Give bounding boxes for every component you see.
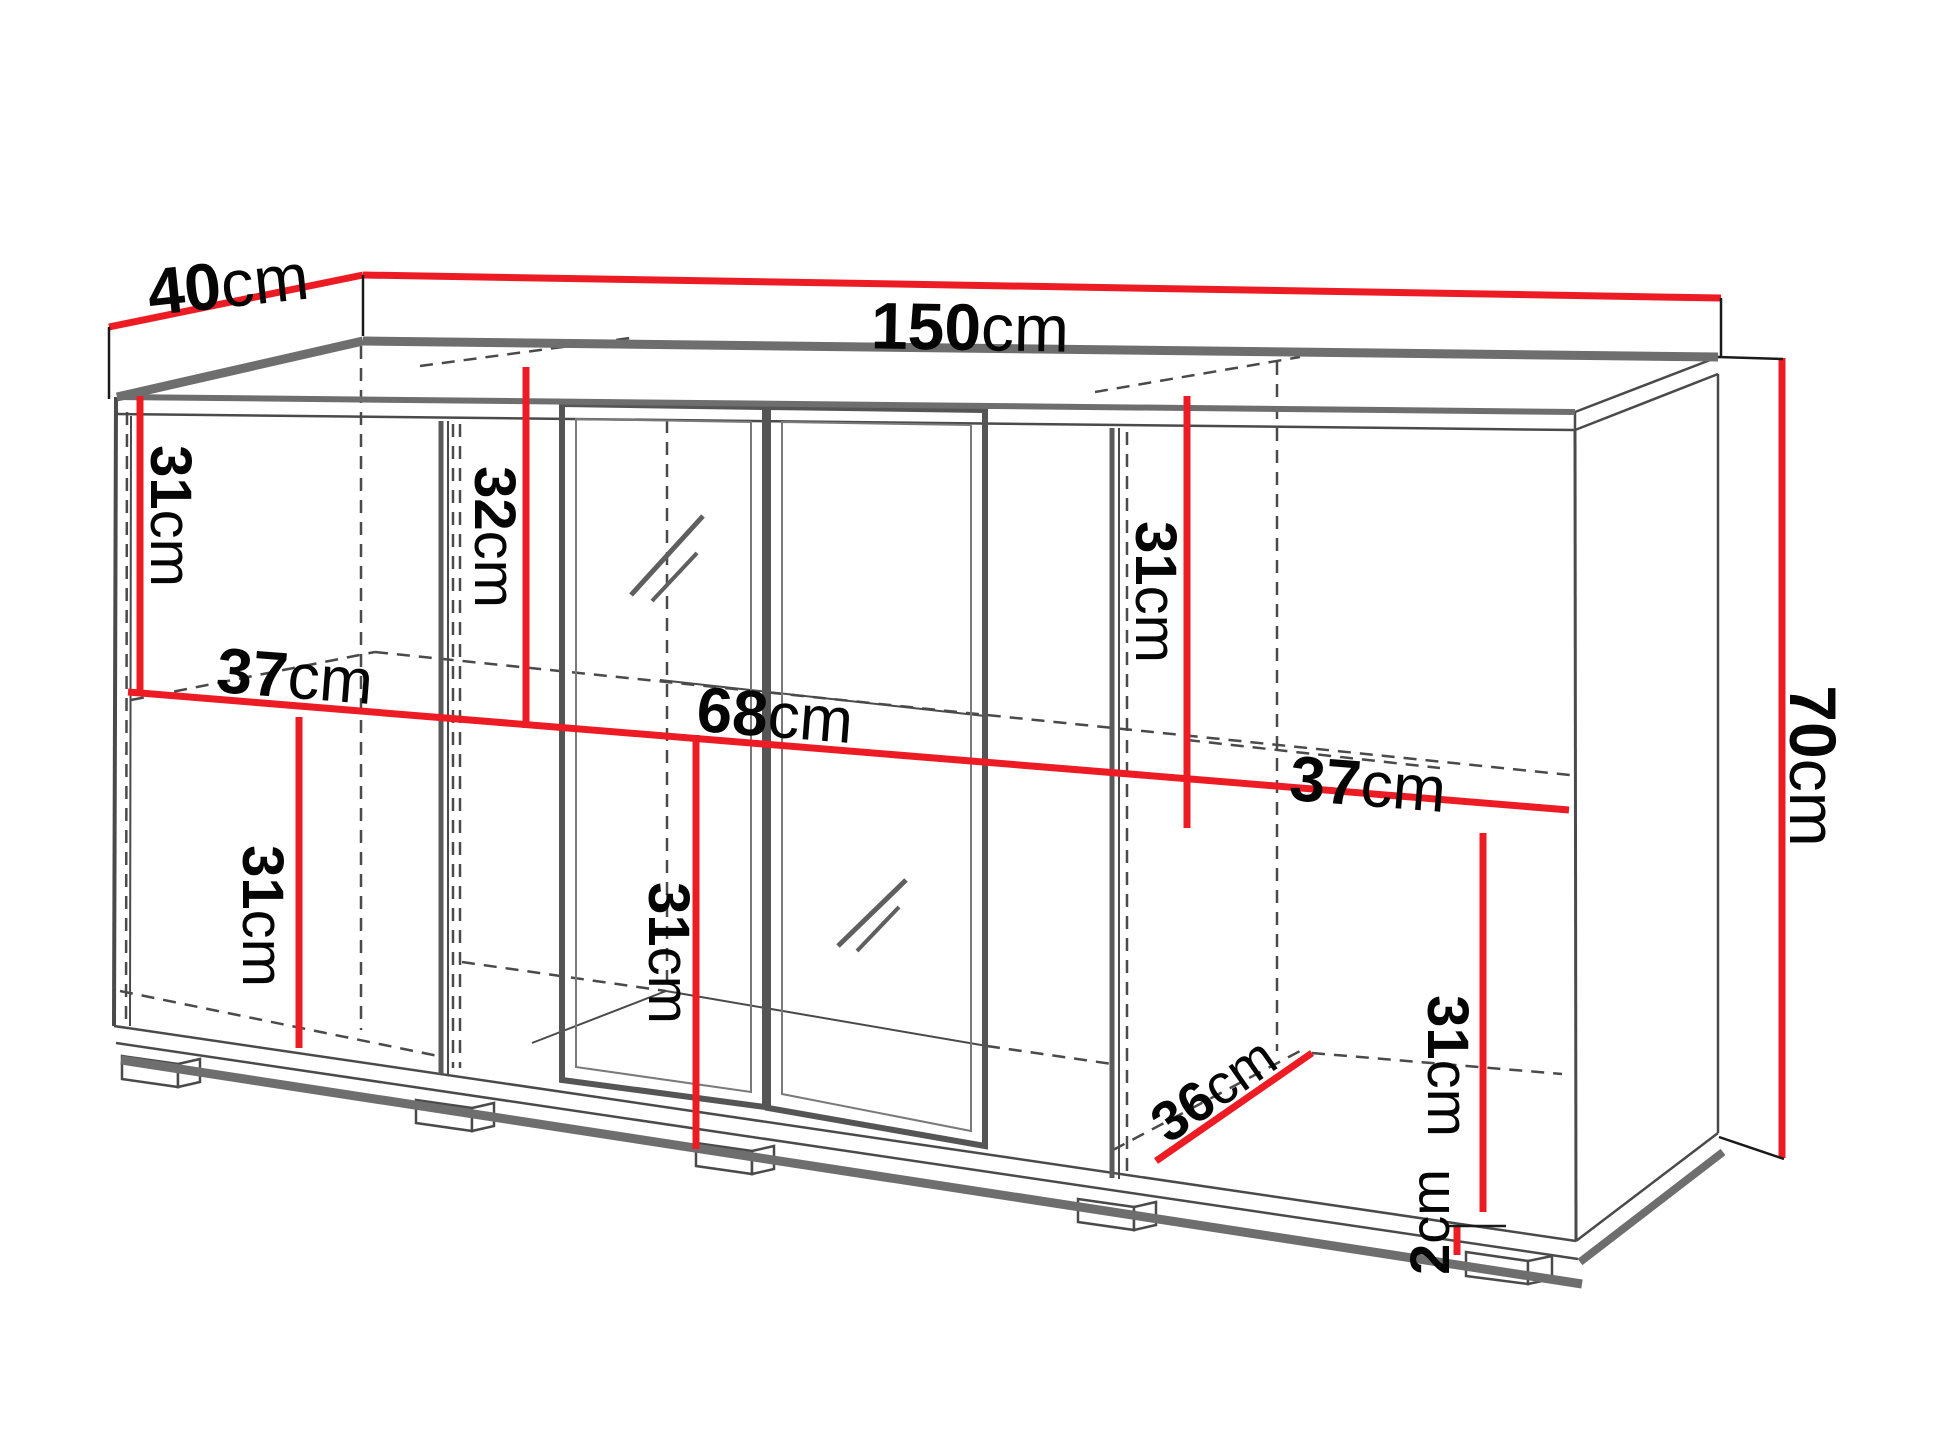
- left-front-edge: [114, 397, 116, 1026]
- top-left-edge: [117, 341, 363, 397]
- depth-label: 40cm: [144, 239, 312, 329]
- top-slab-right-bottom-edge: [1575, 374, 1718, 430]
- glass-door-right-frame: [768, 407, 985, 1146]
- shelf-right-width-label: 37cm: [1287, 742, 1449, 826]
- top-right-section-label: 31cm: [1124, 521, 1189, 663]
- bottom-left-section-label: 31cm: [231, 845, 296, 987]
- top-left-section-label: 31cm: [139, 445, 204, 587]
- furniture-dimension-diagram: 40cm 150cm 70cm 31cm 32cm 31cm 37cm 68cm…: [0, 0, 1939, 1454]
- bottom-right-section-label: 31cm: [1416, 995, 1481, 1137]
- hidden-floor-back-mid: [987, 1046, 1112, 1064]
- left-inner-edge: [130, 416, 131, 1026]
- top-middle-section-label: 32cm: [463, 466, 528, 608]
- extension-height-bottom: [1719, 1137, 1784, 1159]
- floor-depth-label: 36cm: [1139, 1024, 1287, 1154]
- hidden-top-depth-right: [1095, 357, 1300, 392]
- right-side-shadow: [1580, 1152, 1723, 1262]
- height-label: 70cm: [1776, 685, 1850, 846]
- top-slab-right-top-edge: [1575, 357, 1718, 412]
- width-label: 150cm: [870, 288, 1069, 365]
- glass-door-right-pane: [782, 422, 971, 1131]
- right-side-bottom-edge: [1576, 1133, 1718, 1241]
- floor-back-edge-visible: [666, 991, 987, 1046]
- shelf-left-width-label: 37cm: [214, 634, 376, 718]
- diagram-canvas: 40cm 150cm 70cm 31cm 32cm 31cm 37cm 68cm…: [0, 0, 1939, 1454]
- glass-reflection-upper-2: [652, 553, 697, 601]
- bottom-center-section-label: 31cm: [637, 882, 702, 1024]
- shelf-center-width-label: 68cm: [694, 673, 856, 757]
- hidden-floor-front-left: [120, 991, 443, 1057]
- extension-height-top: [1718, 357, 1783, 359]
- plinth-top-edge: [114, 1026, 1576, 1241]
- top-slab-bottom-edge: [117, 414, 1575, 430]
- plinth-shadow: [121, 1060, 1582, 1284]
- hidden-left-inner: [126, 412, 127, 1024]
- front-right-edge: [1575, 430, 1576, 1241]
- dimension-labels: 40cm 150cm 70cm 31cm 32cm 31cm 37cm 68cm…: [139, 239, 1851, 1275]
- plinth-height-label: 2cm: [1398, 1169, 1461, 1275]
- plinth-bottom-edge: [116, 1043, 1578, 1259]
- glass-reflection-lower-2: [857, 907, 899, 951]
